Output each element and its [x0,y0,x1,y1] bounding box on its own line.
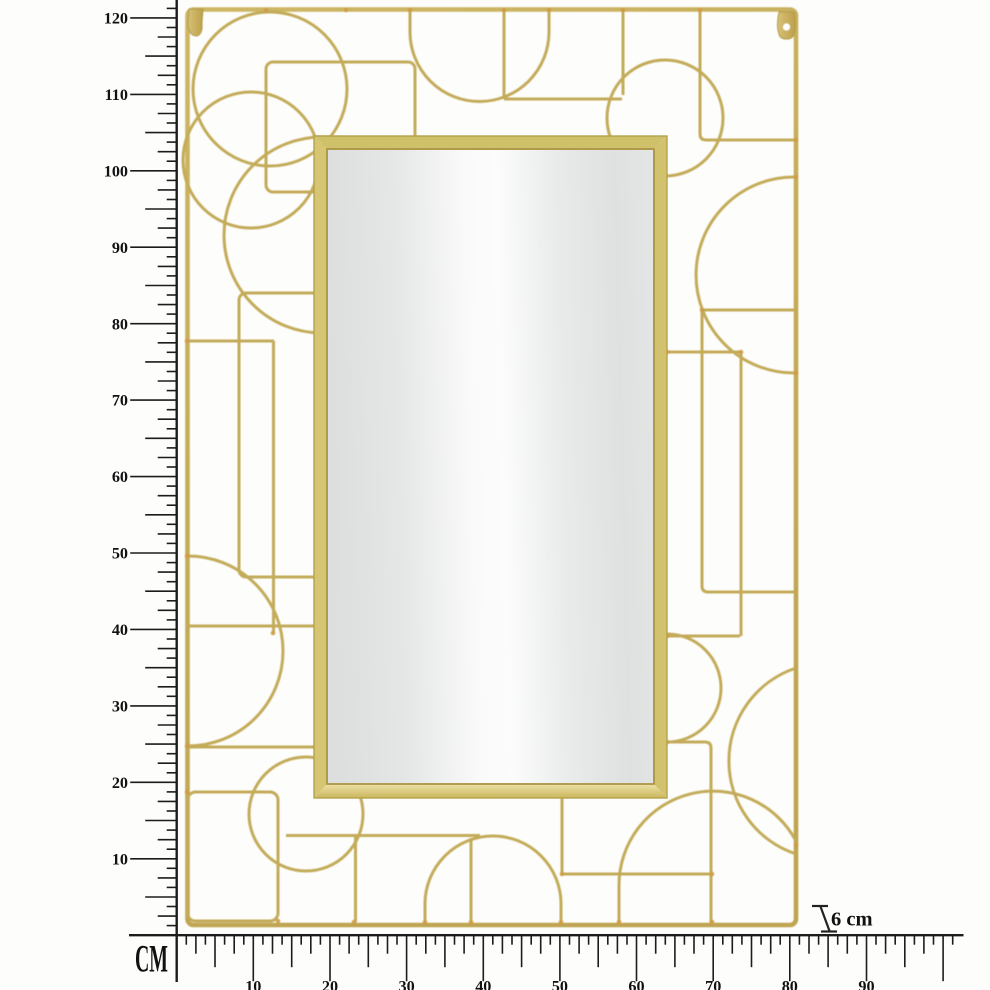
svg-text:20: 20 [112,774,128,792]
svg-text:50: 50 [112,545,128,563]
svg-text:10: 10 [112,850,128,868]
svg-text:10: 10 [245,978,261,990]
svg-text:70: 70 [705,978,721,990]
svg-text:70: 70 [112,392,128,410]
svg-text:90: 90 [112,239,128,257]
svg-text:CM: CM [135,938,168,981]
svg-text:6 cm: 6 cm [831,909,873,931]
svg-text:80: 80 [112,315,128,333]
svg-text:40: 40 [112,621,128,639]
svg-text:120: 120 [104,10,128,28]
svg-text:110: 110 [105,86,128,104]
svg-text:60: 60 [628,978,644,990]
svg-text:40: 40 [475,978,491,990]
svg-text:60: 60 [112,468,128,486]
svg-text:20: 20 [322,978,338,990]
svg-text:50: 50 [552,978,568,990]
svg-text:90: 90 [858,978,874,990]
svg-text:100: 100 [104,162,128,180]
svg-text:30: 30 [112,698,128,716]
svg-text:30: 30 [399,978,415,990]
svg-text:80: 80 [782,978,798,990]
